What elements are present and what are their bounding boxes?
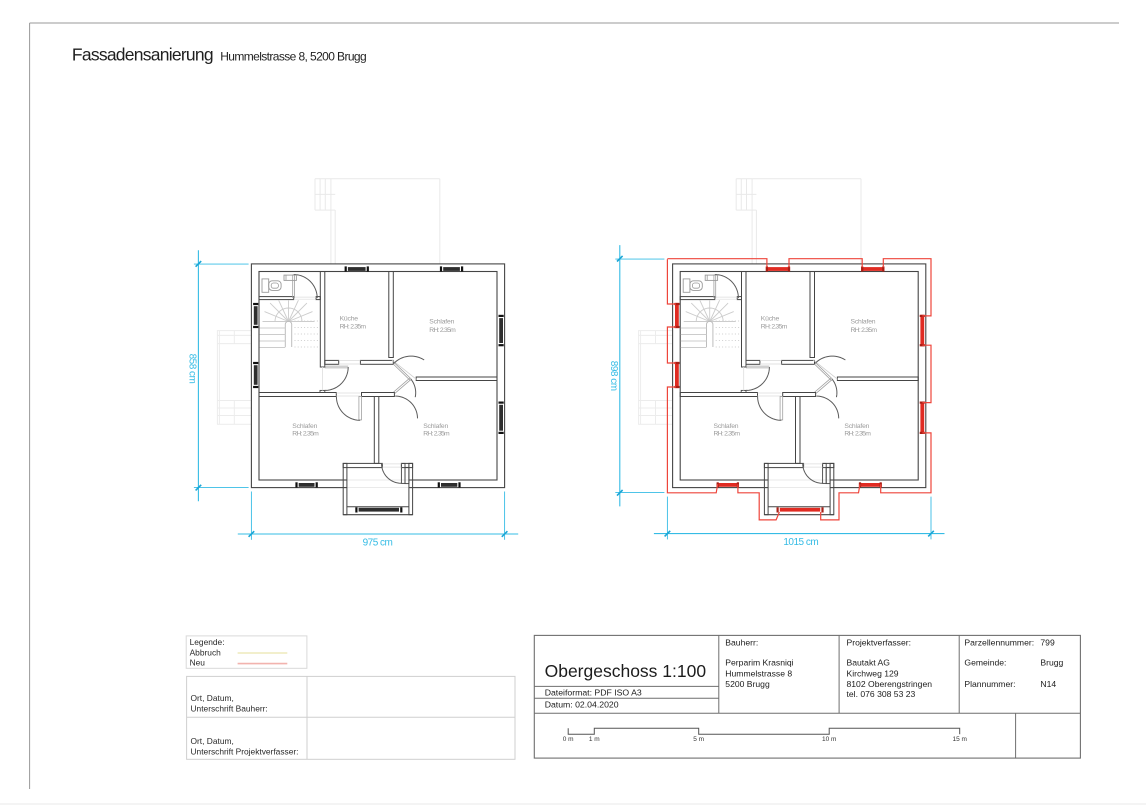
svg-text:N14: N14: [1040, 679, 1056, 689]
svg-text:Küche: Küche: [761, 315, 780, 322]
svg-text:Schlafen: Schlafen: [844, 423, 869, 430]
svg-text:Schlafen: Schlafen: [292, 423, 317, 430]
svg-text:tel. 076 308 53 23: tel. 076 308 53 23: [847, 689, 916, 699]
svg-text:RH: 2.35m: RH: 2.35m: [292, 431, 319, 438]
svg-text:975 cm: 975 cm: [363, 537, 393, 548]
svg-text:Ort, Datum,: Ort, Datum,: [191, 736, 234, 746]
svg-text:10 m: 10 m: [822, 736, 836, 743]
svg-text:Kirchweg 129: Kirchweg 129: [847, 669, 899, 679]
svg-text:Schlafen: Schlafen: [714, 423, 739, 430]
svg-text:Hummelstrasse 8: Hummelstrasse 8: [725, 669, 792, 679]
svg-text:1015 cm: 1015 cm: [783, 537, 818, 548]
svg-text:Bautakt AG: Bautakt AG: [847, 658, 891, 668]
svg-text:0 m: 0 m: [563, 736, 574, 743]
svg-text:5 m: 5 m: [693, 736, 704, 743]
svg-text:RH: 2.35m: RH: 2.35m: [761, 324, 788, 331]
svg-text:5200 Brugg: 5200 Brugg: [725, 679, 770, 689]
svg-text:Legende:: Legende:: [190, 637, 225, 647]
svg-text:Dateiformat: PDF ISO A3: Dateiformat: PDF ISO A3: [545, 688, 642, 698]
svg-text:799: 799: [1040, 637, 1055, 647]
svg-text:Brugg: Brugg: [1040, 658, 1063, 668]
svg-text:15 m: 15 m: [952, 736, 966, 743]
svg-text:Gemeinde:: Gemeinde:: [964, 658, 1006, 668]
svg-text:Datum: 02.04.2020: Datum: 02.04.2020: [545, 700, 619, 710]
svg-text:Hummelstrasse 8, 5200 Brugg: Hummelstrasse 8, 5200 Brugg: [220, 50, 366, 64]
svg-text:Abbruch: Abbruch: [190, 648, 222, 658]
svg-text:Plannummer:: Plannummer:: [964, 679, 1015, 689]
svg-text:898 cm: 898 cm: [608, 361, 619, 391]
svg-text:RH: 2.35m: RH: 2.35m: [844, 431, 871, 438]
svg-text:Unterschrift Bauherr:: Unterschrift Bauherr:: [191, 704, 268, 714]
svg-text:Perparim Krasniqi: Perparim Krasniqi: [725, 658, 793, 668]
svg-text:Ort, Datum,: Ort, Datum,: [191, 693, 234, 703]
svg-text:Fassadensanierung: Fassadensanierung: [72, 45, 213, 65]
svg-text:Parzellennummer:: Parzellennummer:: [964, 637, 1034, 647]
svg-text:Küche: Küche: [340, 315, 359, 322]
svg-text:Bauherr:: Bauherr:: [725, 637, 758, 647]
svg-text:RH: 2.35m: RH: 2.35m: [340, 324, 367, 331]
svg-text:RH: 2.35m: RH: 2.35m: [851, 327, 878, 334]
svg-text:Unterschrift Projektverfasser:: Unterschrift Projektverfasser:: [191, 747, 299, 757]
svg-text:Schlafen: Schlafen: [429, 318, 454, 325]
svg-text:858 cm: 858 cm: [187, 354, 198, 384]
svg-text:RH: 2.35m: RH: 2.35m: [714, 431, 741, 438]
svg-text:RH: 2.35m: RH: 2.35m: [423, 431, 450, 438]
svg-text:Obergeschoss 1:100: Obergeschoss 1:100: [545, 661, 707, 681]
svg-text:8102 Oberengstringen: 8102 Oberengstringen: [847, 679, 933, 689]
svg-text:Schlafen: Schlafen: [423, 423, 448, 430]
svg-text:RH: 2.35m: RH: 2.35m: [429, 327, 456, 334]
svg-text:1 m: 1 m: [589, 736, 600, 743]
svg-text:Schlafen: Schlafen: [851, 318, 876, 325]
svg-text:Projektverfasser:: Projektverfasser:: [847, 637, 911, 647]
svg-text:Neu: Neu: [190, 658, 206, 668]
